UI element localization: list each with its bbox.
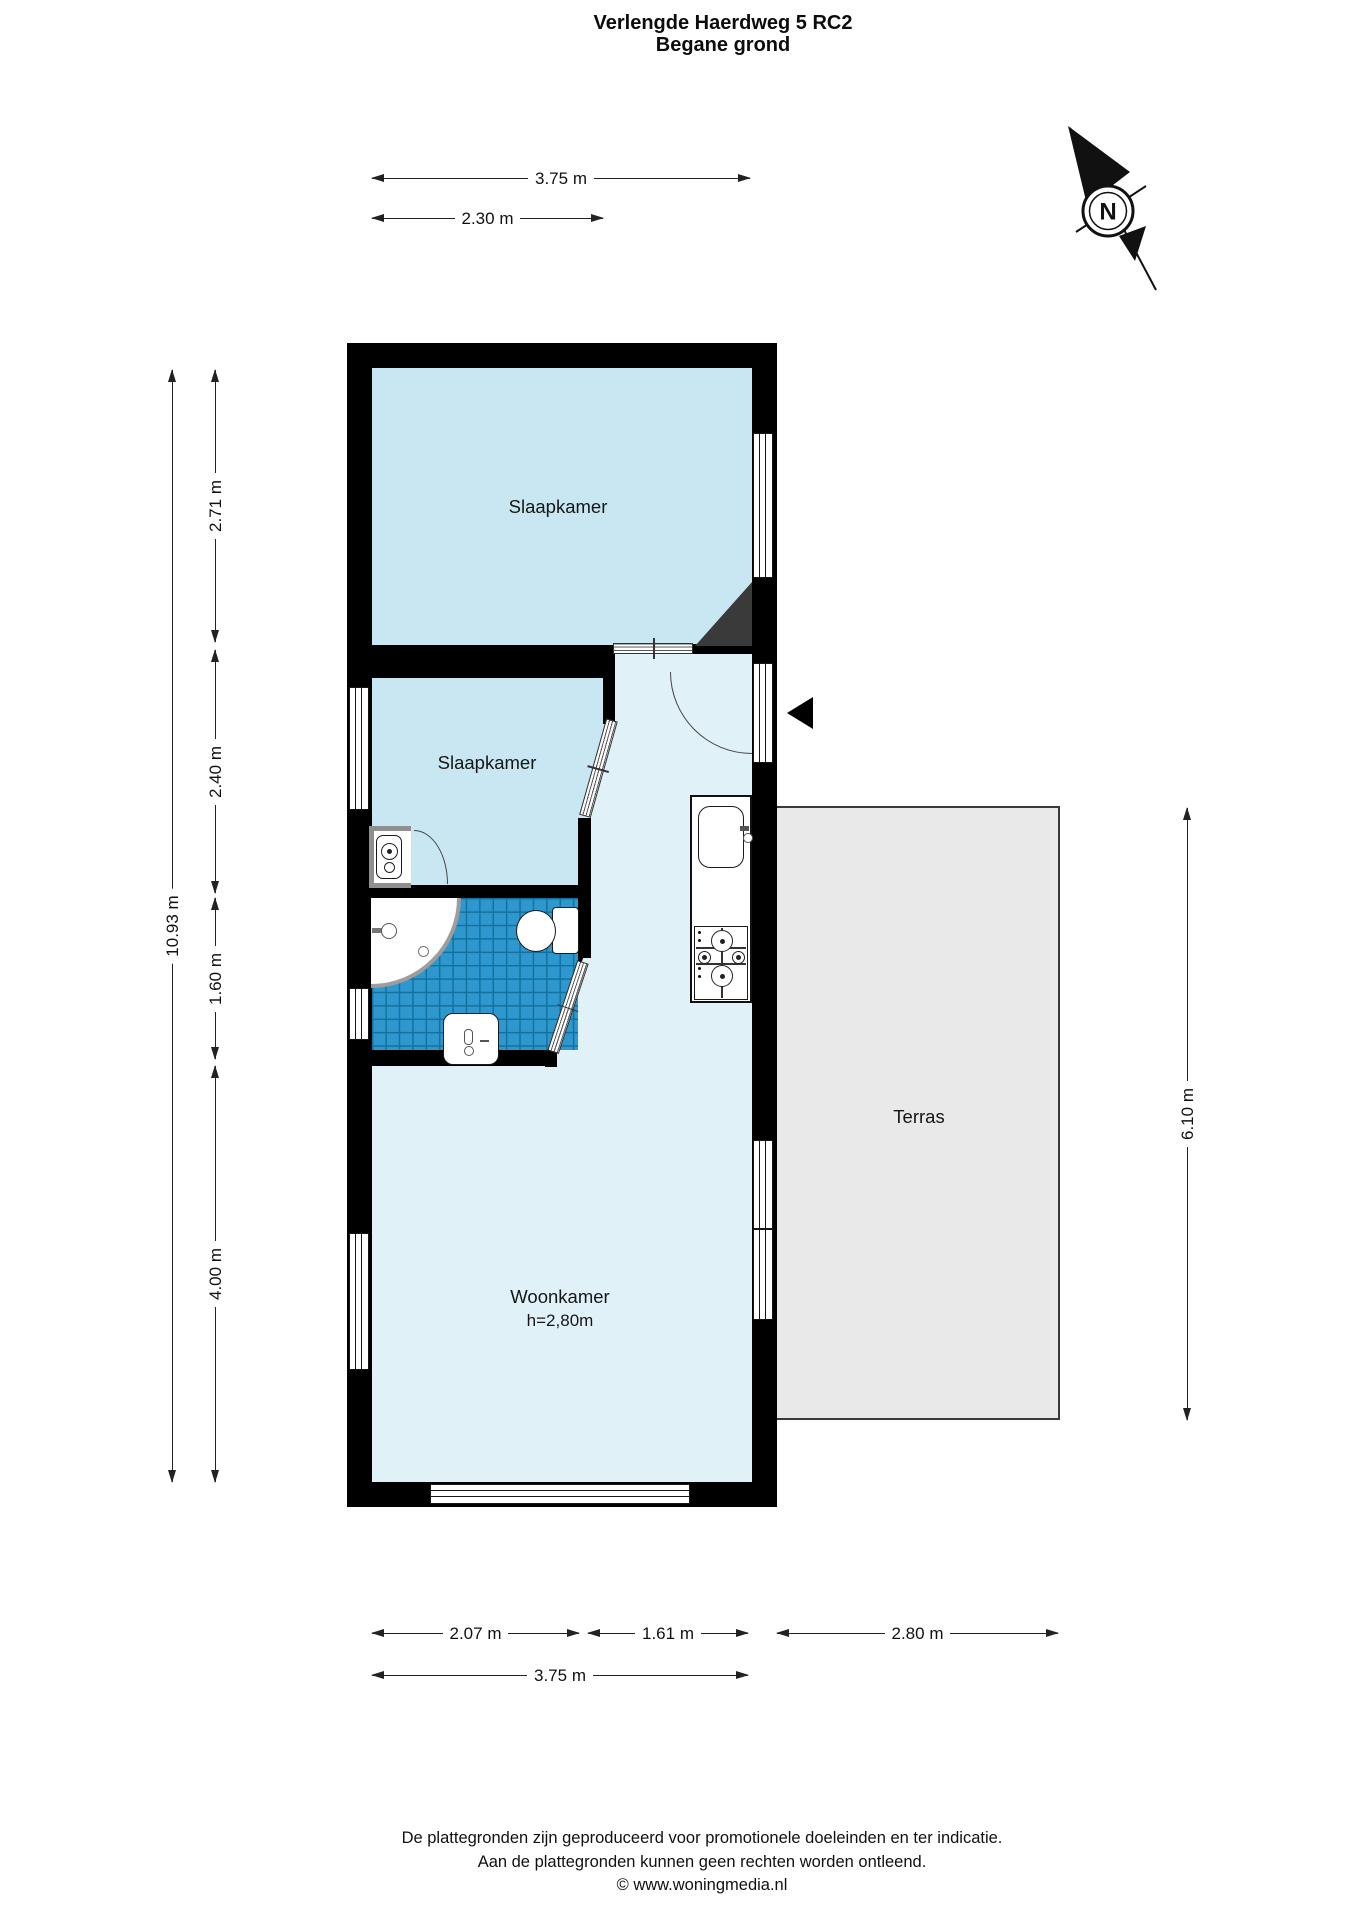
dim-bottom-terrace-label: 2.80 m: [885, 1624, 951, 1644]
dim-left-bathroom-label: 1.60 m: [206, 946, 226, 1012]
shower-head-circle: [381, 923, 397, 939]
dim-top-total: 3.75 m: [372, 178, 750, 179]
shower-drain: [418, 946, 429, 957]
window-bathroom-left: [349, 988, 369, 1040]
dim-left-bedroom1: 2.71 m: [215, 370, 216, 642]
footer-line-1: De plattegronden zijn geproduceerd voor …: [352, 1827, 1052, 1851]
dim-left-total: 10.93 m: [172, 370, 173, 1482]
dim-bottom-total: 3.75 m: [372, 1675, 748, 1676]
hall-floor-strip: [591, 818, 617, 964]
window-living-bottom: [430, 1484, 690, 1504]
stove-burner-bottom: [711, 965, 733, 987]
dim-top-total-label: 3.75 m: [528, 169, 594, 189]
kitchen-sink: [698, 806, 744, 868]
north-compass-icon: N: [1040, 112, 1220, 312]
sliding-door-bedroom1: [613, 643, 693, 654]
dim-bottom-hall: 1.61 m: [588, 1633, 748, 1634]
dim-right-terrace: 6.10 m: [1187, 808, 1188, 1420]
livingroom-floor: [372, 1066, 752, 1482]
footer-line-2: Aan de plattegronden kunnen geen rechten…: [352, 1851, 1052, 1875]
bedroom2-label: Slaapkamer: [438, 752, 537, 774]
wall-bathroom-right: [578, 818, 591, 898]
bedroom1-label: Slaapkamer: [509, 496, 608, 518]
french-doors-terrace: [753, 1140, 773, 1320]
stove-burner-top: [711, 930, 733, 952]
kitchen-faucet-knob: [743, 833, 753, 843]
plan-title-address: Verlengde Haerdweg 5 RC2: [423, 12, 1023, 34]
washbasin-handle-icon: [480, 1040, 489, 1042]
livingroom-label: Woonkamer: [510, 1286, 609, 1308]
dim-left-bathroom: 1.60 m: [215, 898, 216, 1059]
window-bedroom1-right: [753, 433, 773, 578]
dim-bottom-bathroom: 2.07 m: [372, 1633, 579, 1634]
wc-toilet-small-circle: [384, 862, 395, 873]
terrace-label: Terras: [893, 1106, 944, 1128]
floorplan-sheet: Verlengde Haerdweg 5 RC2 Begane grond N: [0, 0, 1358, 1920]
dim-left-living: 4.00 m: [215, 1066, 216, 1482]
dim-bottom-terrace: 2.80 m: [777, 1633, 1058, 1634]
wall-bathroom-corner: [545, 1051, 557, 1067]
dim-left-bedroom2-label: 2.40 m: [206, 739, 226, 805]
stove-knob-dots: [698, 931, 701, 934]
toilet-bowl: [516, 910, 556, 952]
stove-burner-left: [698, 951, 711, 964]
dim-right-terrace-label: 6.10 m: [1178, 1081, 1198, 1147]
washbasin-faucet-icon: [464, 1029, 473, 1045]
wall-bedroom2-right: [603, 678, 615, 724]
dim-left-living-label: 4.00 m: [206, 1241, 226, 1307]
dim-bottom-bathroom-label: 2.07 m: [443, 1624, 509, 1644]
wc-toilet-bowl-circle: [381, 843, 398, 860]
dim-left-total-label: 10.93 m: [163, 888, 183, 963]
dim-left-bedroom1-label: 2.71 m: [206, 473, 226, 539]
dim-bottom-total-label: 3.75 m: [527, 1666, 593, 1686]
dim-top-bedroom2: 2.30 m: [372, 218, 603, 219]
dim-top-bedroom2-label: 2.30 m: [455, 209, 521, 229]
compass-north-letter: N: [1099, 199, 1116, 226]
plan-title-floor: Begane grond: [423, 34, 1023, 56]
stove-burner-right: [732, 951, 745, 964]
french-doors-split: [753, 1228, 773, 1230]
footer-disclaimer: De plattegronden zijn geproduceerd voor …: [352, 1827, 1052, 1898]
window-living-left: [349, 1233, 369, 1370]
footer-copyright: © www.woningmedia.nl: [352, 1874, 1052, 1898]
dim-bottom-hall-label: 1.61 m: [635, 1624, 701, 1644]
window-bedroom2-left: [349, 687, 369, 810]
dim-left-bedroom2: 2.40 m: [215, 650, 216, 893]
toilet-tank: [552, 907, 579, 954]
entrance-arrow-icon: [787, 697, 813, 729]
plan-title: Verlengde Haerdweg 5 RC2 Begane grond: [423, 12, 1023, 56]
front-door: [753, 663, 773, 763]
kitchen-faucet-icon: [740, 826, 749, 831]
washbasin-faucet-knob: [464, 1046, 474, 1056]
livingroom-height-label: h=2,80m: [527, 1311, 594, 1331]
